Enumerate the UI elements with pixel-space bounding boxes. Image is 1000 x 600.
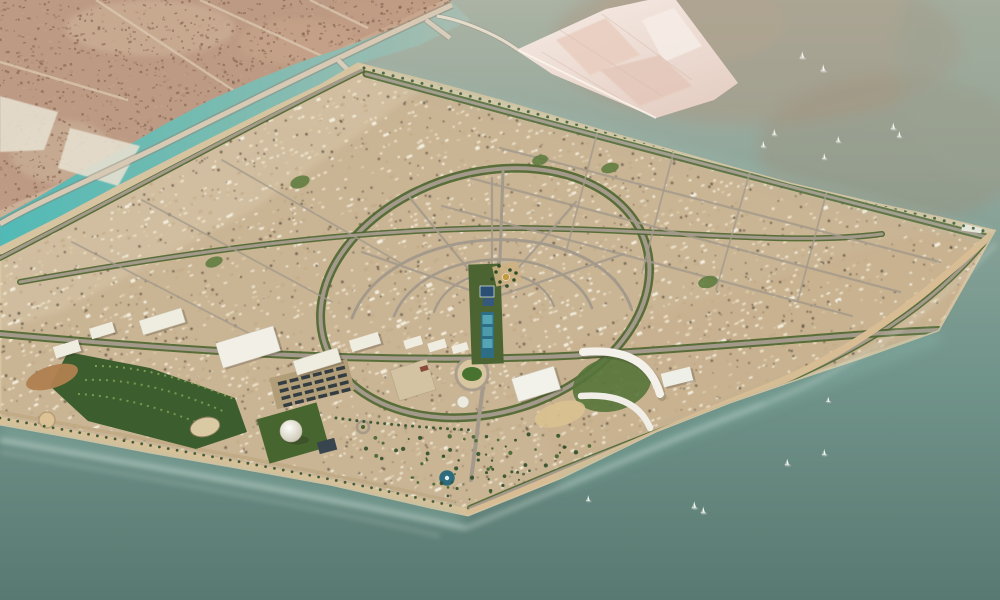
palm-tree <box>78 431 81 434</box>
beach-roundel <box>39 412 55 428</box>
palm-tree <box>352 483 355 486</box>
palm-tree <box>363 67 366 70</box>
palm-tree <box>185 450 188 453</box>
palm-tree <box>388 490 391 493</box>
tree <box>470 476 474 480</box>
palm-tree <box>140 442 143 445</box>
tree <box>463 438 466 441</box>
tree <box>446 495 449 498</box>
tree <box>451 481 453 483</box>
canal-segment <box>483 327 493 336</box>
tree <box>485 435 488 438</box>
tree <box>448 434 452 438</box>
palm-tree <box>418 425 421 428</box>
tree <box>501 484 504 487</box>
palm-tree <box>370 486 373 489</box>
tree <box>516 471 519 474</box>
tree <box>518 479 520 481</box>
palm-tree <box>123 439 126 442</box>
tree <box>380 457 384 461</box>
palm-tree <box>317 476 320 479</box>
palm-tree <box>348 418 351 421</box>
tree <box>488 478 490 480</box>
palm-tree <box>246 462 249 465</box>
tree <box>411 476 414 479</box>
tree <box>476 452 480 456</box>
palm-tree <box>335 417 338 420</box>
tree <box>474 439 477 442</box>
mosque-tree <box>490 277 494 281</box>
palm-tree <box>326 477 329 480</box>
fountain-jet <box>445 476 449 480</box>
tree <box>514 439 517 442</box>
tree <box>503 474 507 478</box>
tree <box>440 481 444 485</box>
tree <box>442 455 445 458</box>
tree <box>469 498 471 500</box>
palm-tree <box>149 444 152 447</box>
tree <box>489 466 492 469</box>
palm-tree <box>390 423 393 426</box>
tree <box>505 445 507 447</box>
palm-tree <box>439 427 442 430</box>
palm-tree <box>87 433 90 436</box>
palm-tree <box>405 494 408 497</box>
tree <box>394 448 398 452</box>
palm-tree <box>449 504 452 507</box>
palm-tree <box>96 434 99 437</box>
palm-tree <box>202 454 205 457</box>
palm-tree <box>291 470 294 473</box>
tree <box>588 444 592 448</box>
tree <box>527 432 531 436</box>
palm-tree <box>131 441 134 444</box>
palm-tree <box>220 457 223 460</box>
tree <box>364 447 368 451</box>
mosque-tree <box>514 271 518 275</box>
tree <box>563 445 566 448</box>
palm-tree <box>369 421 372 424</box>
tree <box>454 473 456 475</box>
tree <box>485 471 488 474</box>
water-tower <box>280 420 302 442</box>
palm-tree <box>16 420 19 423</box>
palm-tree <box>411 425 414 428</box>
palm-tree <box>423 498 426 501</box>
scene <box>0 0 1000 600</box>
palm-tree <box>341 417 344 420</box>
mosque-tree <box>512 278 516 282</box>
tree <box>401 447 405 451</box>
tree <box>485 453 487 455</box>
palm-tree <box>397 423 400 426</box>
canal-segment <box>483 339 493 348</box>
tree <box>491 447 493 449</box>
tree <box>508 451 512 455</box>
grand-plaza-lawn <box>462 367 482 381</box>
palm-tree <box>376 421 379 424</box>
palm-tree <box>335 479 338 482</box>
tree <box>510 470 513 473</box>
tree <box>544 463 548 467</box>
palm-tree <box>414 496 417 499</box>
tree <box>420 462 423 465</box>
palm-tree <box>396 492 399 495</box>
palm-tree <box>34 423 37 426</box>
palm-tree <box>300 472 303 475</box>
blue-roof-building <box>483 298 494 306</box>
palm-tree <box>440 502 443 505</box>
palm-tree <box>362 420 365 423</box>
canal-segment <box>483 315 493 324</box>
palm-tree <box>355 419 358 422</box>
tree <box>382 442 385 445</box>
tree <box>417 481 420 484</box>
tree <box>408 438 410 440</box>
palm-tree <box>61 428 64 431</box>
palm-tree <box>344 481 347 484</box>
palm-tree <box>383 422 386 425</box>
palm-tree <box>425 426 428 429</box>
palm-tree <box>361 485 364 488</box>
tree <box>491 459 493 461</box>
palm-tree <box>460 428 463 431</box>
palm-tree <box>114 438 117 441</box>
palm-tree <box>404 424 407 427</box>
palm-tree <box>308 474 311 477</box>
mosque-tree <box>494 270 498 274</box>
palm-tree <box>69 430 72 433</box>
tree <box>448 448 452 452</box>
tree <box>456 487 459 490</box>
mosque-tree <box>498 280 502 284</box>
tree <box>558 435 560 437</box>
palm-tree <box>432 500 435 503</box>
palm-tree <box>255 464 258 467</box>
tree <box>528 469 531 472</box>
palm-tree <box>167 447 170 450</box>
dome-pavilion <box>457 396 469 408</box>
tree <box>373 436 377 440</box>
tree <box>555 454 559 458</box>
palm-tree <box>211 455 214 458</box>
palm-tree <box>453 428 456 431</box>
tree <box>487 468 490 471</box>
tree <box>524 463 528 467</box>
palm-tree <box>158 446 161 449</box>
tree <box>426 452 430 456</box>
palm-tree <box>193 452 196 455</box>
palm-tree <box>43 425 46 428</box>
blue-roof-building <box>480 286 494 297</box>
tree <box>418 436 422 440</box>
tree <box>497 439 500 442</box>
tree <box>574 450 578 454</box>
palm-tree <box>229 459 232 462</box>
aerial-city-render <box>0 0 1000 600</box>
palm-tree <box>105 436 108 439</box>
palm-tree <box>176 449 179 452</box>
tree <box>559 452 561 454</box>
mosque-tree <box>505 284 509 288</box>
palm-tree <box>379 488 382 491</box>
tree <box>425 457 427 459</box>
palm-tree <box>273 467 276 470</box>
tree <box>489 491 492 494</box>
tree <box>477 458 480 461</box>
tree <box>432 483 435 486</box>
palm-tree <box>264 465 267 468</box>
roundabout-green <box>361 425 365 429</box>
tree <box>457 459 459 461</box>
palm-tree <box>467 428 470 431</box>
palm-tree <box>432 426 435 429</box>
palm-tree <box>238 460 241 463</box>
palm-tree <box>52 426 55 429</box>
mosque-dome <box>502 273 509 280</box>
tree <box>454 466 458 470</box>
palm-tree <box>25 422 28 425</box>
palm-tree <box>7 418 10 421</box>
tree <box>534 448 537 451</box>
mosque-tree <box>508 268 512 272</box>
tree <box>447 486 450 489</box>
palm-tree <box>282 469 285 472</box>
mosque-tree <box>497 264 501 268</box>
tree <box>522 473 525 476</box>
palm-tree <box>446 427 449 430</box>
tree <box>472 435 476 439</box>
tree <box>374 454 378 458</box>
